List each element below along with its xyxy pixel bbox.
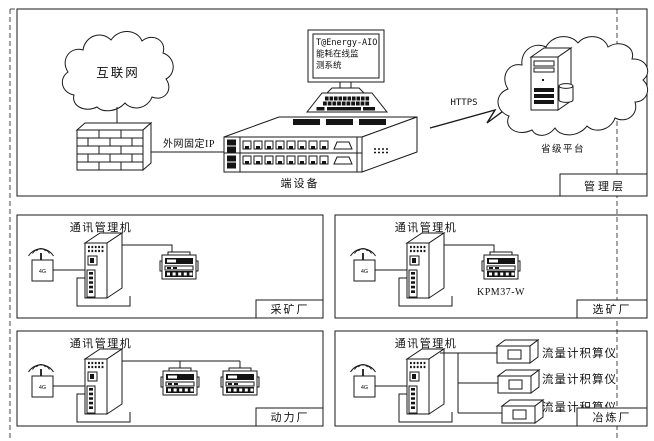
energy-meter (221, 368, 259, 395)
internet-cloud: 互联网 (62, 31, 173, 110)
4g-label: 4G (39, 385, 46, 391)
flow-totalizer (498, 370, 539, 393)
energy-meter (160, 252, 198, 279)
wan-ip-label: 外网固定IP (163, 137, 215, 150)
plant-ore-dressing-section: 通讯管理机 4G KPM37-W 选矿厂 (335, 215, 647, 318)
energy-meter (161, 368, 199, 395)
network-architecture-diagram: 互联网 外网固定IP T@Energy-AIO 能耗在线监 测系统 (0, 0, 654, 441)
plant-name: 选矿厂 (593, 303, 632, 316)
terminal-device (224, 117, 417, 172)
plant-smelting-section: 通讯管理机 4G 流量计积算仪 流量计积算仪 流量计积算仪 冶炼厂 (335, 331, 647, 426)
plant-name: 动力厂 (271, 411, 310, 424)
province-platform-cloud: 省级平台 (498, 37, 648, 155)
plant-mining-section: 通讯管理机 4G 采矿厂 (17, 215, 323, 318)
plant-name: 采矿厂 (271, 303, 310, 316)
gateway-label: 通讯管理机 (395, 336, 458, 350)
monitor-line-3: 测系统 (316, 60, 342, 71)
energy-meter (482, 252, 520, 279)
management-layer-label: 管理层 (584, 179, 626, 193)
monitor-stand (340, 82, 351, 88)
meter-model-label: KPM37-W (477, 287, 525, 298)
internet-cloud-label: 互联网 (96, 66, 140, 80)
meter-wire (444, 245, 494, 252)
gateway-label: 通讯管理机 (70, 220, 133, 234)
monitor-line-2: 能耗在线监 (316, 49, 359, 60)
gateway-label: 通讯管理机 (395, 220, 458, 234)
plant-power-section: 通讯管理机 4G 动力厂 (17, 331, 323, 426)
flow-totalizer-label: 流量计积算仪 (542, 372, 617, 386)
management-console: T@Energy-AIO 能耗在线监 测系统 (307, 30, 387, 112)
plant-name: 冶炼厂 (593, 410, 632, 424)
terminal-device-label: 端设备 (281, 176, 320, 190)
meter-wire (122, 245, 172, 252)
keyboard-icon (307, 93, 387, 112)
management-layer-section: 互联网 外网固定IP T@Energy-AIO 能耗在线监 测系统 (17, 9, 648, 196)
4g-label: 4G (361, 385, 368, 391)
flow-totalizer (502, 400, 543, 423)
meter-wire (122, 361, 240, 368)
flow-meter-wires (440, 353, 502, 413)
database-cylinder-icon (559, 84, 573, 103)
gateway-label: 通讯管理机 (70, 336, 133, 350)
4g-label: 4G (361, 269, 368, 275)
flow-totalizer-label: 流量计积算仪 (542, 346, 617, 360)
4g-label: 4G (39, 269, 46, 275)
flow-totalizer (497, 340, 538, 363)
https-label: HTTPS (450, 98, 477, 108)
province-platform-label: 省级平台 (541, 143, 585, 155)
firewall-icon (77, 123, 151, 170)
monitor-line-1: T@Energy-AIO (316, 38, 377, 48)
